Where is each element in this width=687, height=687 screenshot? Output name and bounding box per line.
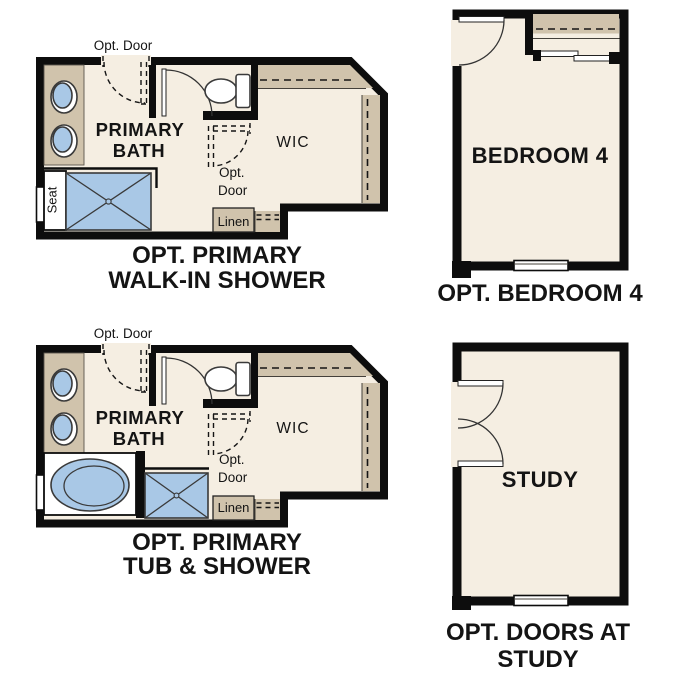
caption-walk-in-shower-line2: WALK-IN SHOWER [108, 267, 325, 294]
plan-study: STUDY OPT. DOORS AT STUDY [446, 347, 630, 673]
caption-tub-shower-line2: TUB & SHOWER [123, 553, 311, 580]
wic-opt-door-label-line2: Door [218, 183, 248, 198]
primary-bath-label-line1: PRIMARY [96, 407, 185, 428]
caption-study-line1: OPT. DOORS AT [446, 619, 630, 646]
wic-opt-door-label-line1: Opt. [219, 452, 245, 467]
floor-plan-sheet: Opt. Door PRIMARY BATH WIC Opt. Door Lin… [0, 0, 687, 687]
tub-icon [44, 453, 136, 515]
wic-opt-door-label-line2: Door [218, 470, 248, 485]
wic-label: WIC [276, 134, 309, 151]
closet-icon [525, 14, 620, 64]
linen-label: Linen [218, 214, 250, 229]
study-label: STUDY [502, 467, 579, 492]
linen-label: Linen [218, 500, 250, 515]
caption-bedroom4: OPT. BEDROOM 4 [437, 280, 643, 307]
bedroom4-label: BEDROOM 4 [472, 143, 609, 168]
caption-study-line2: STUDY [497, 646, 578, 673]
primary-bath-label-line2: BATH [113, 428, 165, 449]
shower-icon [143, 469, 209, 519]
walk-in-shower-icon [44, 169, 157, 231]
caption-tub-shower-line1: OPT. PRIMARY [132, 529, 302, 556]
plan-tub-shower: Opt. Door PRIMARY BATH WIC Opt. Door Lin… [37, 326, 385, 580]
caption-walk-in-shower-line1: OPT. PRIMARY [132, 242, 302, 269]
plan-bedroom-4: BEDROOM 4 OPT. BEDROOM 4 [437, 14, 643, 307]
wic-label: WIC [276, 420, 309, 437]
wall-notch [452, 261, 471, 278]
opt-door-label: Opt. Door [94, 38, 153, 53]
plan-walk-in-shower: Opt. Door PRIMARY BATH WIC Opt. Door Lin… [37, 38, 385, 294]
tub-shower-divider-wall [136, 451, 145, 518]
door-opening [451, 20, 462, 66]
primary-bath-label-line2: BATH [113, 140, 165, 161]
window-icon [514, 596, 568, 606]
double-door-opening [451, 382, 462, 467]
opt-door-label: Opt. Door [94, 326, 153, 341]
wic-opt-door-label-line1: Opt. [219, 165, 245, 180]
wall-notch [452, 596, 471, 610]
primary-bath-label-line1: PRIMARY [96, 119, 185, 140]
floor-plan-canvas: Opt. Door PRIMARY BATH WIC Opt. Door Lin… [0, 0, 687, 687]
seat-label: Seat [45, 186, 60, 213]
window-icon [514, 261, 568, 271]
